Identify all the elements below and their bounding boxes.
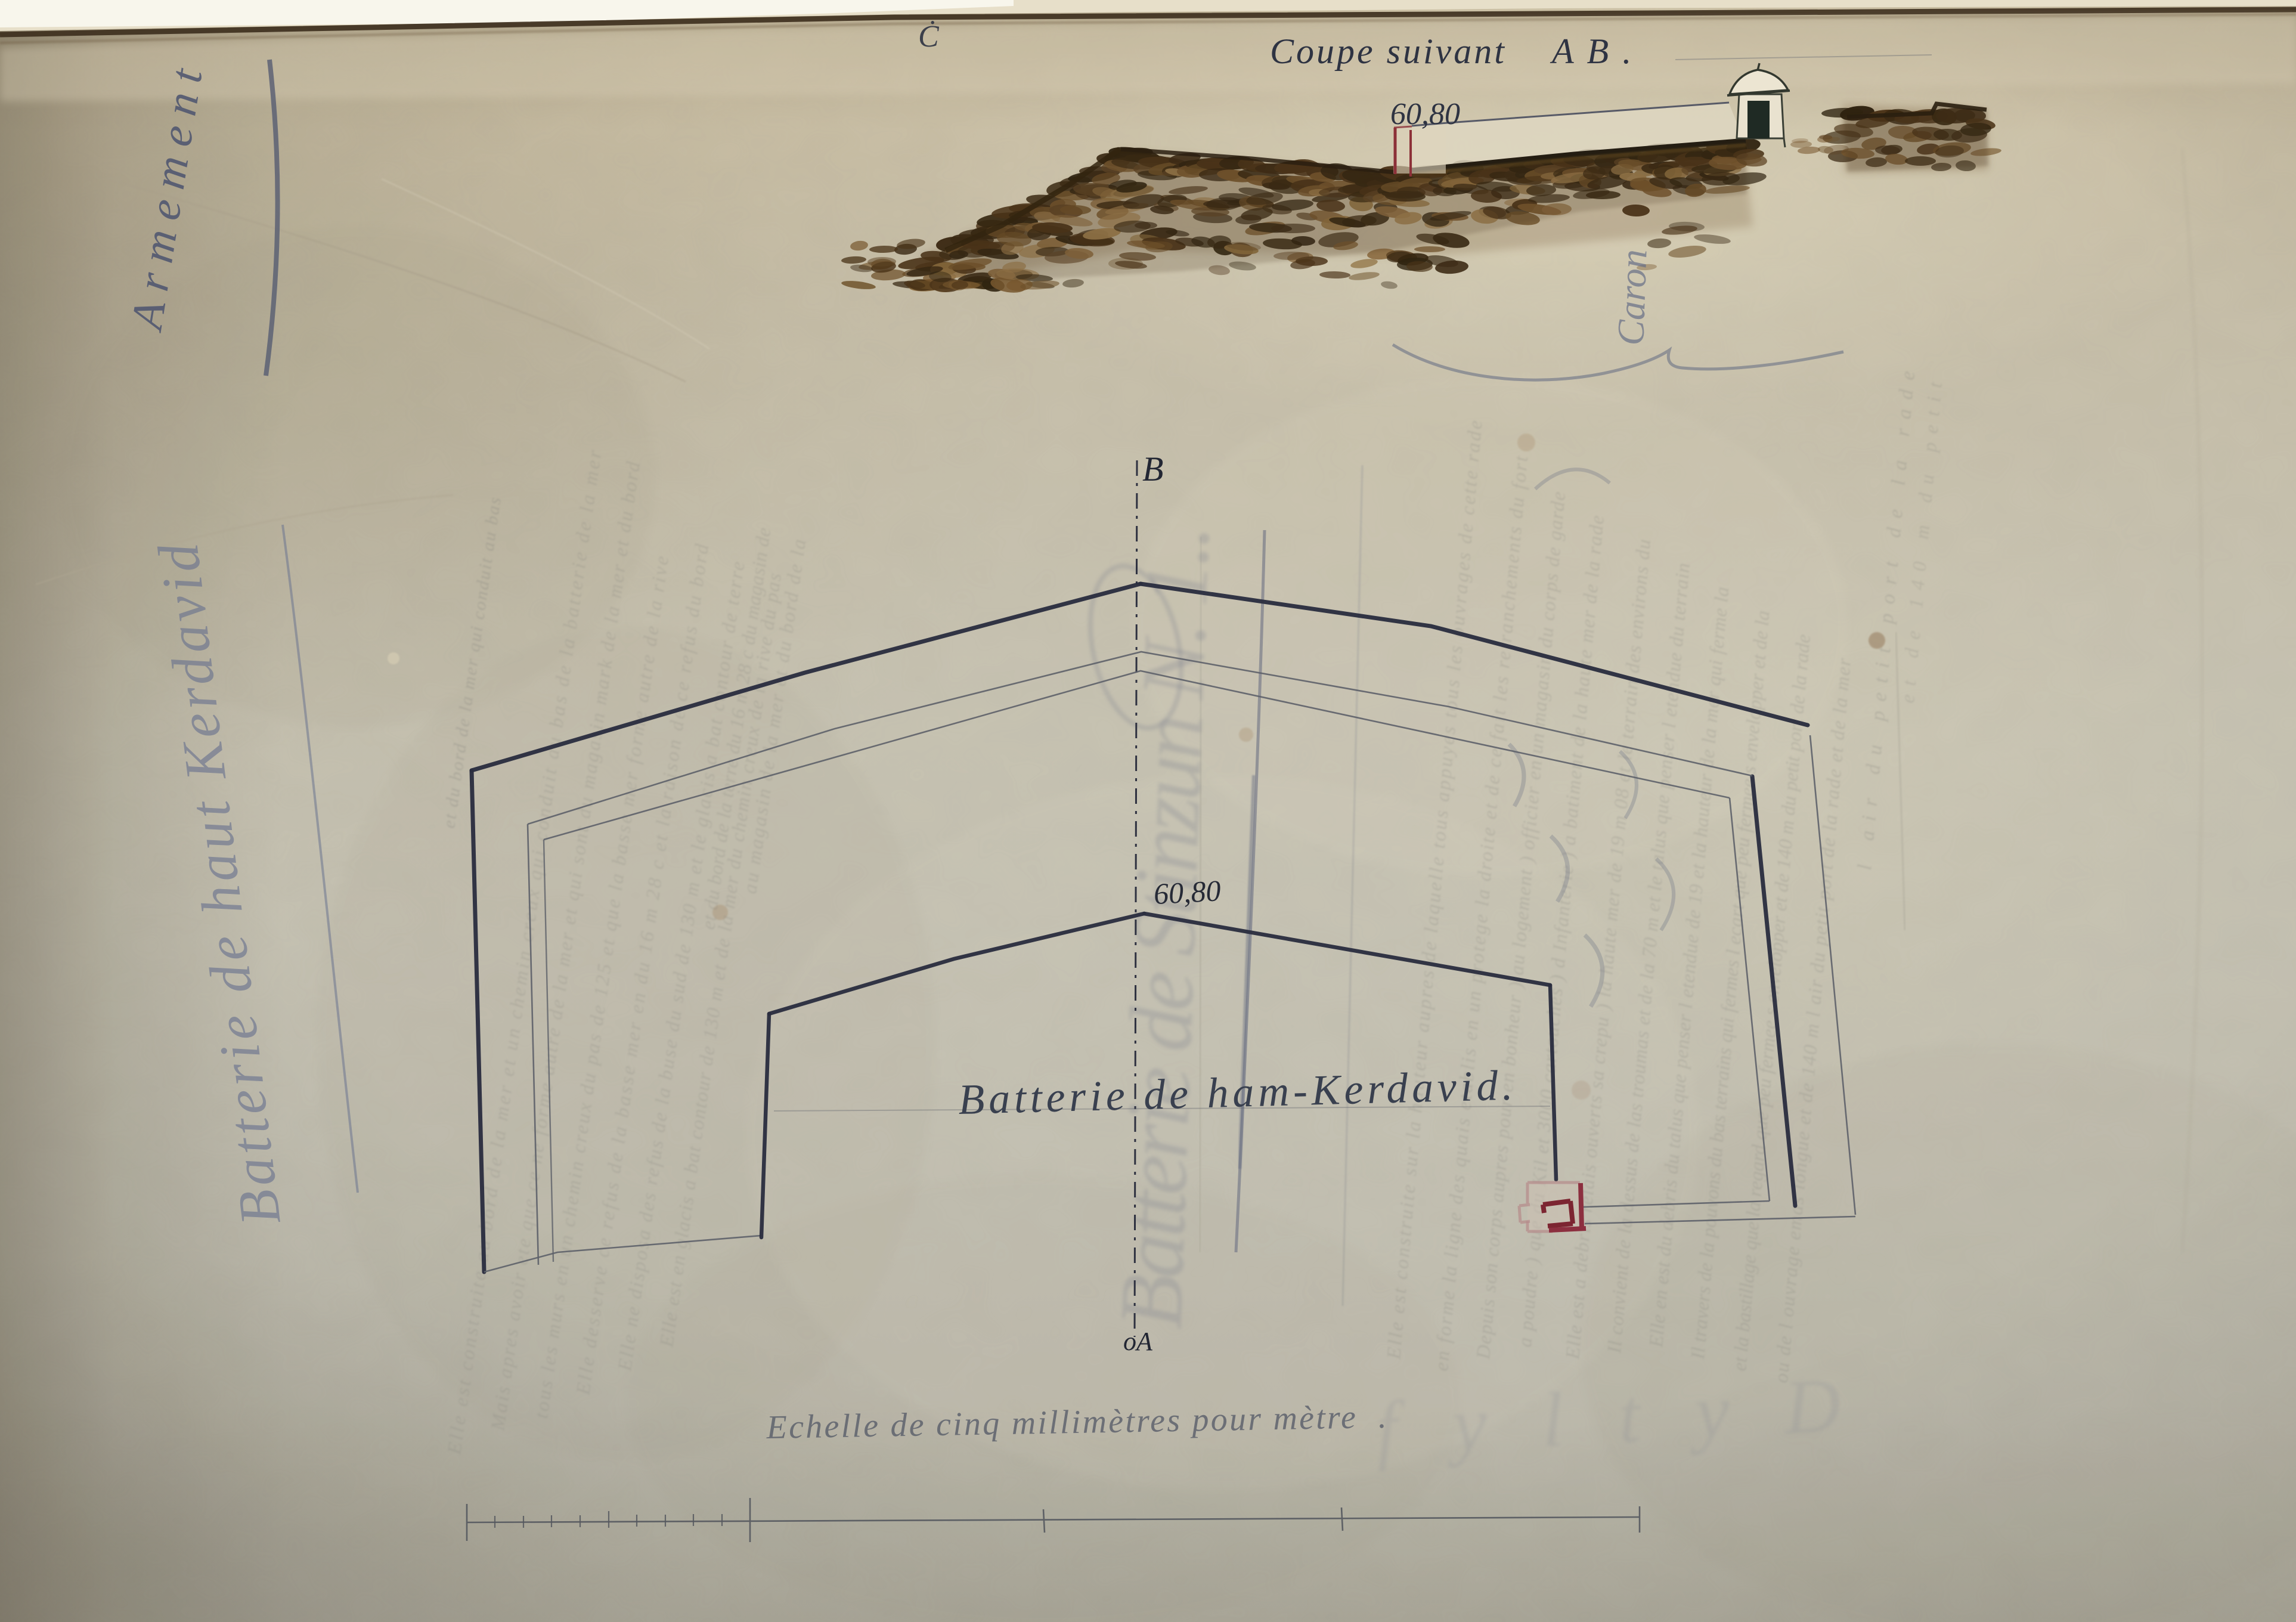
- svg-text:Caron: Caron: [1609, 249, 1655, 346]
- svg-text:60,80: 60,80: [1390, 97, 1460, 131]
- svg-text:B: B: [1142, 450, 1163, 488]
- svg-text:οA: οA: [1123, 1327, 1153, 1356]
- svg-text:Ċ: Ċ: [918, 20, 940, 54]
- svg-text:Coupe suivant A B .: Coupe suivant A B .: [1270, 32, 1634, 71]
- svg-text:60,80: 60,80: [1153, 874, 1222, 911]
